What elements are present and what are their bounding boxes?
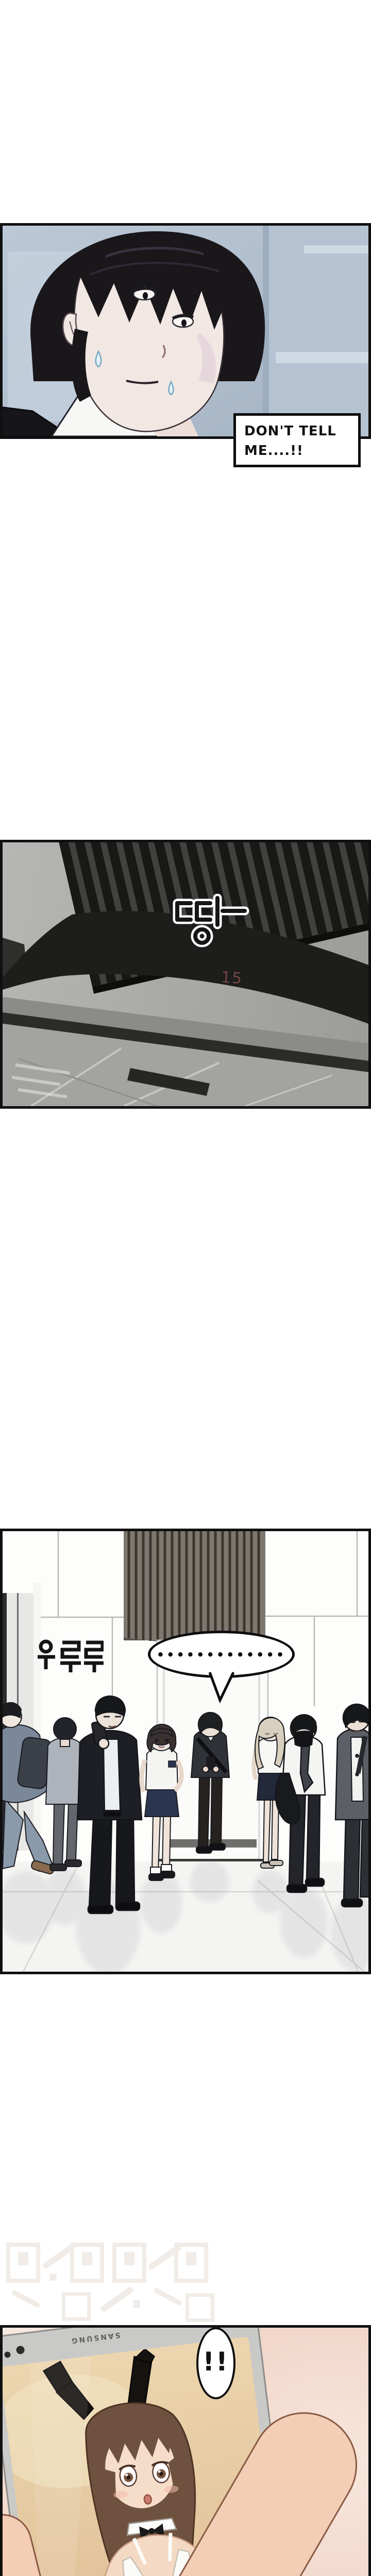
panel-startled-man — [0, 223, 371, 439]
panel-phone-closeup: SANSUNG — [0, 2325, 371, 2576]
webtoon-page: DON'T TELL ME....!! — [0, 0, 371, 2576]
sfx-crowd-art — [37, 1639, 104, 1673]
startled-man-art — [3, 226, 368, 436]
lobby-art — [3, 1531, 368, 1972]
elevator-ceiling-art — [3, 842, 368, 1106]
floor-indicator: 15 — [221, 969, 244, 988]
watermark-band-1 — [0, 2243, 371, 2325]
caption-box: DON'T TELL ME....!! — [233, 413, 361, 467]
silence-dots: ••••••••••••• — [157, 1647, 286, 1662]
speech-bubble-tail — [208, 1671, 237, 1703]
bg-window — [268, 226, 368, 436]
surprise-text: !! — [203, 2347, 229, 2380]
sfx-ding-art — [170, 894, 252, 948]
phone-logo: SANSUNG — [51, 2328, 139, 2347]
surprise-speech-bubble: !! — [196, 2327, 235, 2399]
panel-elevator-ceiling: 띵- 15 — [0, 840, 371, 1109]
caption-line-2: ME....!! — [244, 441, 358, 461]
phone-camera-dot — [16, 2345, 25, 2354]
caption-line-1: DON'T TELL — [244, 421, 358, 441]
phone-camera-dot — [4, 2351, 11, 2358]
panel-lobby-crowd: 우루루 ••••••••••••• — [0, 1529, 371, 1974]
